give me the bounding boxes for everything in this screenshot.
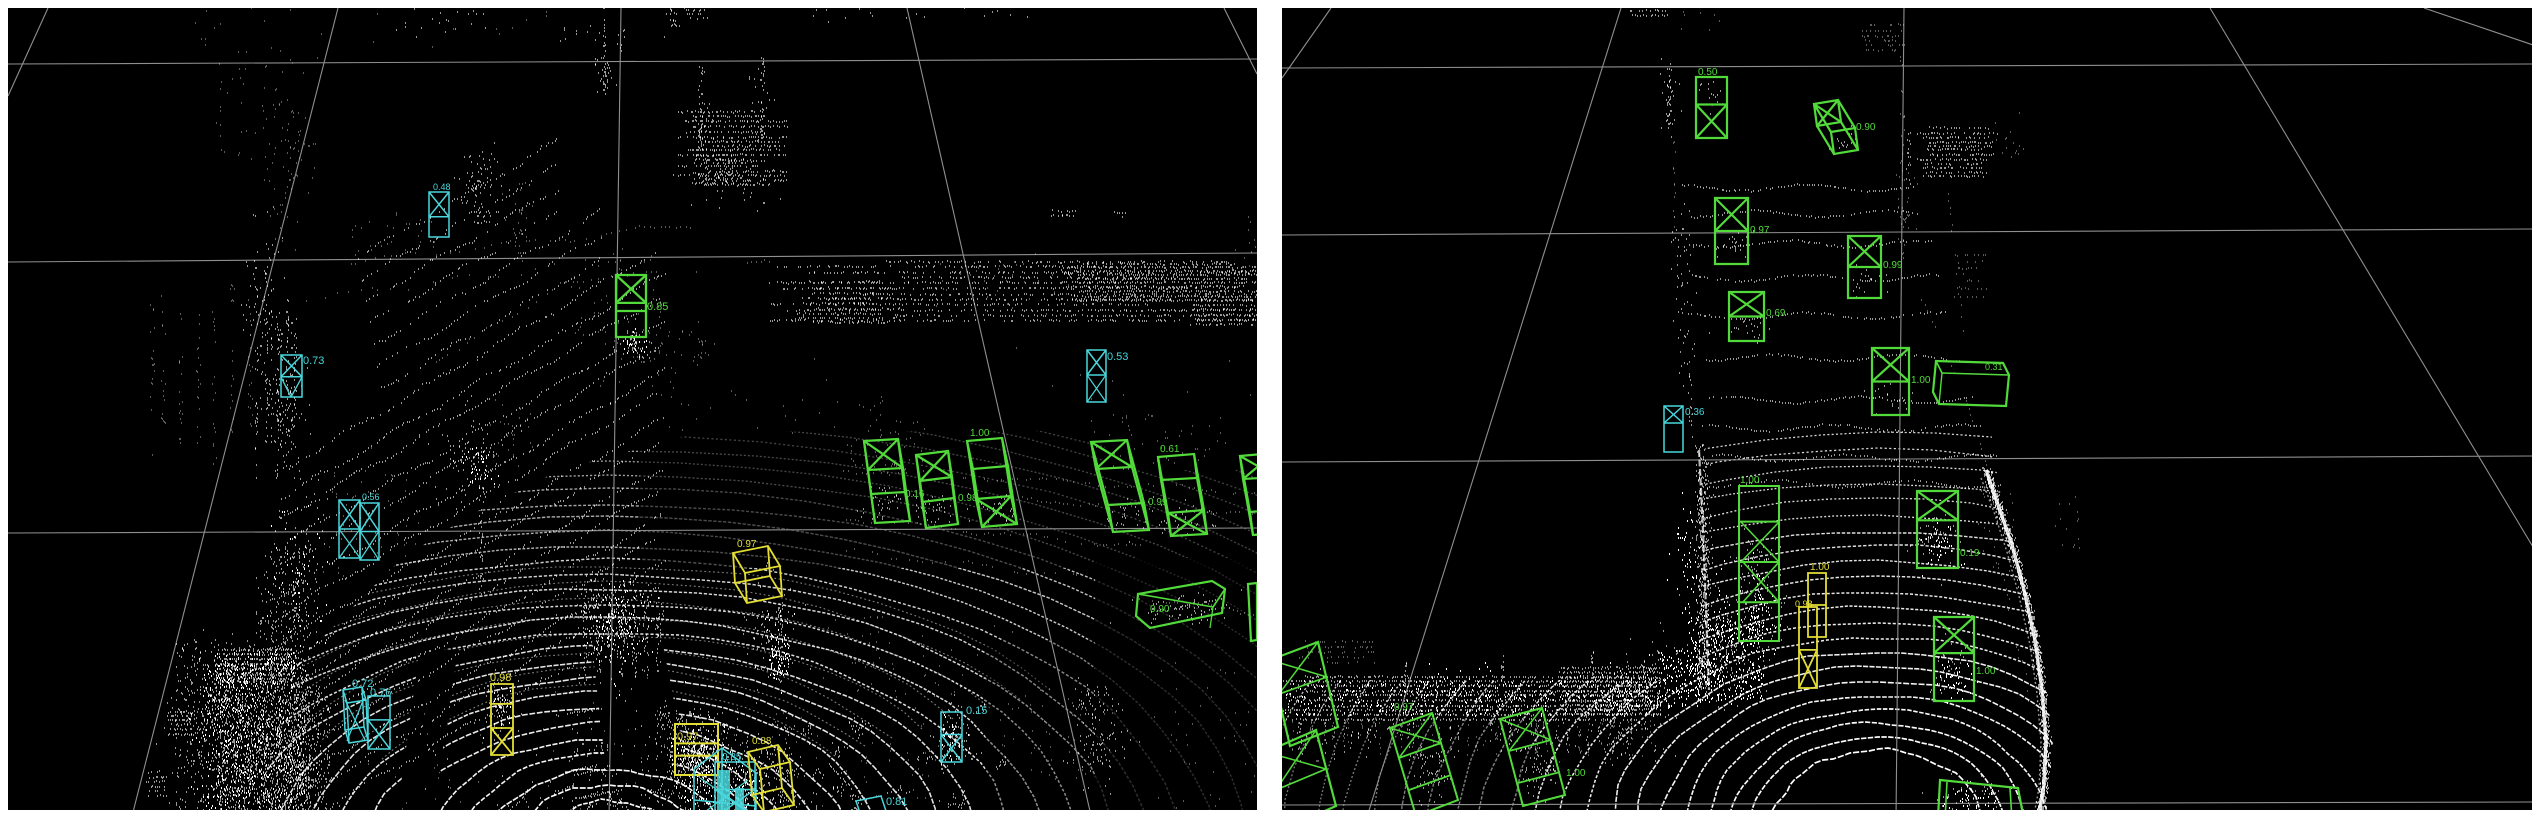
svg-text:1.00: 1.00 — [1810, 562, 1830, 573]
svg-text:1.00: 1.00 — [1911, 375, 1931, 386]
svg-text:1.00: 1.00 — [1740, 475, 1760, 486]
svg-text:0.31: 0.31 — [1985, 362, 2003, 372]
svg-text:0.69: 0.69 — [1766, 308, 1786, 319]
svg-text:1.00: 1.00 — [970, 428, 990, 439]
svg-text:0.36: 0.36 — [1685, 407, 1705, 418]
svg-text:0.50: 0.50 — [1698, 67, 1718, 78]
svg-text:0.76: 0.76 — [370, 687, 391, 699]
svg-text:0.73: 0.73 — [303, 355, 324, 367]
svg-text:0.97: 0.97 — [677, 731, 698, 743]
svg-text:0.61: 0.61 — [1160, 444, 1180, 455]
svg-text:0.81: 0.81 — [886, 796, 907, 808]
svg-text:0.97: 0.97 — [1750, 225, 1770, 236]
svg-text:0.88: 0.88 — [752, 736, 772, 747]
svg-text:0.97: 0.97 — [737, 539, 757, 550]
svg-text:0.98: 0.98 — [490, 672, 511, 684]
svg-text:1.00: 1.00 — [1566, 768, 1586, 779]
svg-text:0.15: 0.15 — [966, 705, 987, 717]
svg-text:0.90: 0.90 — [1150, 604, 1170, 615]
svg-text:0.90: 0.90 — [1856, 122, 1876, 133]
svg-text:0.97: 0.97 — [1394, 702, 1414, 713]
svg-text:0.99: 0.99 — [1883, 260, 1903, 271]
svg-text:0.56: 0.56 — [362, 492, 380, 502]
svg-text:0.85: 0.85 — [722, 752, 742, 763]
svg-text:0.48: 0.48 — [433, 182, 451, 192]
svg-text:0.19: 0.19 — [1960, 548, 1980, 559]
svg-text:0.53: 0.53 — [1107, 351, 1128, 363]
svg-text:0.98: 0.98 — [1795, 599, 1813, 609]
svg-text:1.00: 1.00 — [1976, 666, 1996, 677]
svg-text:0.85: 0.85 — [647, 301, 668, 313]
